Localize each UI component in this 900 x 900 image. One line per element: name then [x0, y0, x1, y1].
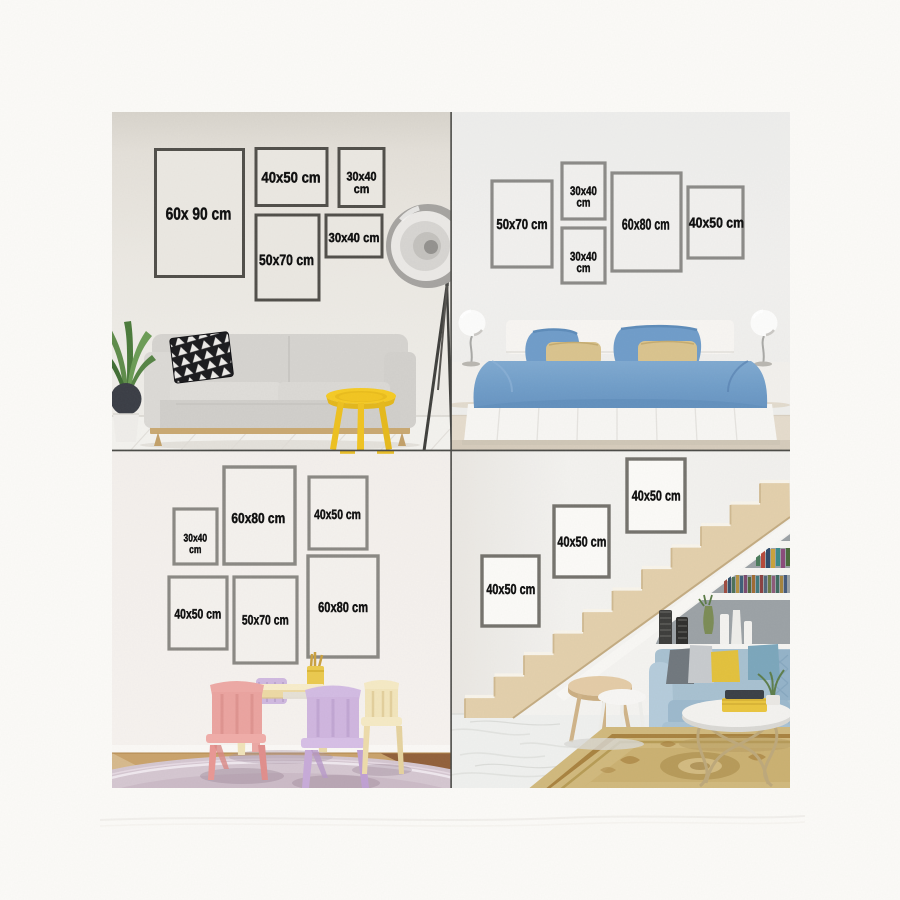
svg-text:60x80 cm: 60x80 cm	[231, 511, 285, 527]
svg-text:cm: cm	[189, 544, 201, 556]
svg-text:50x70 cm: 50x70 cm	[496, 217, 547, 233]
svg-text:50x70 cm: 50x70 cm	[259, 252, 314, 269]
svg-text:50x70 cm: 50x70 cm	[242, 612, 289, 627]
svg-text:40x50 cm: 40x50 cm	[632, 489, 681, 505]
svg-text:60x80 cm: 60x80 cm	[318, 600, 368, 616]
svg-text:cm: cm	[354, 182, 370, 196]
svg-text:60x80 cm: 60x80 cm	[622, 217, 670, 234]
svg-text:40x50 cm: 40x50 cm	[314, 507, 361, 522]
svg-text:40x50 cm: 40x50 cm	[689, 216, 744, 232]
svg-text:40x50 cm: 40x50 cm	[486, 582, 535, 598]
svg-text:40x50 cm: 40x50 cm	[557, 535, 606, 551]
svg-text:30x40: 30x40	[184, 533, 208, 545]
svg-text:cm: cm	[577, 261, 591, 275]
svg-text:40x50 cm: 40x50 cm	[174, 606, 221, 621]
svg-text:40x50 cm: 40x50 cm	[261, 170, 320, 187]
svg-text:30x40 cm: 30x40 cm	[329, 230, 380, 245]
svg-text:cm: cm	[577, 196, 591, 210]
svg-text:60x 90 cm: 60x 90 cm	[166, 203, 232, 223]
